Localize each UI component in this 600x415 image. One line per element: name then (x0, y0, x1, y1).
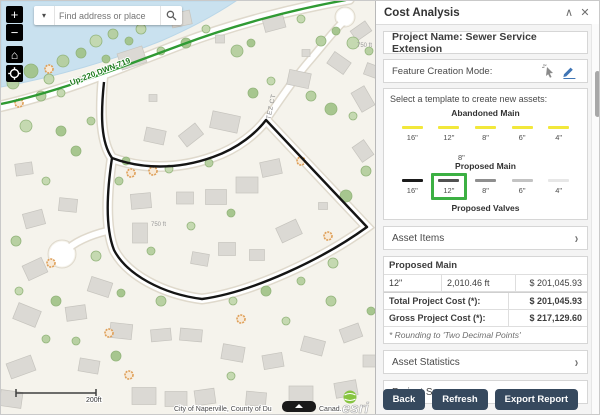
draw-pencil-icon[interactable] (559, 62, 579, 80)
tree-icon (91, 251, 101, 261)
panel-scrollbar-track[interactable] (591, 24, 600, 415)
building-footprint (216, 35, 225, 43)
tree-icon (227, 209, 235, 217)
tree-icon (247, 39, 255, 47)
building-footprint (165, 392, 187, 407)
tree-icon (20, 120, 32, 132)
template-item[interactable]: 8" (467, 120, 504, 147)
gross-cost-value: $ 217,129.60 (509, 310, 587, 326)
tree-icon (57, 89, 65, 97)
template-item[interactable]: 6" (504, 120, 541, 147)
tree-icon (149, 167, 157, 175)
proposed-main-row: 16" 12" 8" 6" 4" (390, 173, 581, 200)
tree-icon (102, 55, 110, 63)
total-cost-value: $ 201,045.93 (509, 293, 587, 309)
template-item[interactable]: 16" (394, 120, 431, 147)
cost-table: Proposed Main 12" 2,010.46 ft $ 201,045.… (383, 256, 588, 344)
building-footprint (236, 177, 258, 193)
tree-icon (326, 296, 336, 306)
tree-icon (125, 37, 133, 45)
template-item[interactable]: 6" (504, 173, 541, 200)
tree-icon (297, 277, 305, 285)
panel-header: Cost Analysis ∧ ✕ (376, 1, 600, 25)
tree-icon (108, 29, 118, 39)
tree-icon (237, 315, 245, 323)
tree-icon (316, 36, 326, 46)
template-item[interactable]: 8" (467, 173, 504, 200)
panel-title: Cost Analysis (384, 7, 561, 19)
tree-icon (361, 166, 371, 176)
feature-creation-mode-label: Feature Creation Mode: (392, 66, 539, 77)
building-footprint (289, 386, 313, 402)
tree-icon (51, 296, 61, 306)
building-footprint (180, 328, 203, 342)
building-footprint (302, 50, 310, 57)
template-item-selected[interactable]: 12" (431, 173, 468, 200)
building-footprint (194, 388, 216, 406)
home-button[interactable]: ⌂ (6, 46, 23, 63)
tree-icon (90, 35, 102, 47)
cost-length-cell: 2,010.46 ft (442, 275, 516, 291)
building-footprint (206, 190, 227, 205)
abandoned-main-extra: 8" (390, 147, 581, 158)
building-footprint (250, 250, 265, 261)
building-footprint (133, 223, 148, 243)
tree-icon (227, 372, 235, 380)
tree-icon (117, 289, 125, 297)
tree-icon (325, 103, 337, 115)
tree-icon (72, 337, 80, 345)
rounding-footnote: * Rounding to 'Two Decimal Points' (384, 327, 526, 343)
tree-icon (282, 317, 290, 325)
template-group-proposed-main: Proposed Main (390, 161, 581, 171)
tree-icon (45, 65, 53, 73)
map-basemap: Up-220 DWN-719 TEZ CT 750 ft 750 ft 200f… (1, 1, 375, 415)
svg-text:esri: esri (342, 400, 370, 415)
cost-analysis-panel: Cost Analysis ∧ ✕ Project Name: Sewer Se… (375, 1, 600, 415)
chevron-right-icon: › (575, 230, 579, 247)
tree-icon (76, 48, 86, 58)
scale-label: 200ft (86, 397, 102, 404)
tree-icon (367, 307, 375, 315)
locate-button[interactable] (6, 65, 23, 82)
cost-amount-cell: $ 201,045.93 (516, 275, 587, 291)
tree-icon (11, 236, 21, 246)
close-icon[interactable]: ✕ (577, 6, 593, 19)
parcel-dimension-label: 750 ft (151, 222, 166, 228)
cul-de-sac (337, 9, 354, 26)
tree-icon (47, 259, 55, 267)
cost-size-cell: 12" (384, 275, 442, 291)
zoom-in-button[interactable]: + (6, 6, 23, 23)
parcel-dimension-label: 750 ft (357, 43, 372, 49)
building-footprint (149, 95, 157, 102)
building-footprint (58, 198, 77, 213)
section-asset-statistics[interactable]: Asset Statistics › (383, 350, 588, 374)
back-button[interactable]: Back (383, 389, 426, 410)
tree-icon (125, 371, 133, 379)
tree-icon (324, 232, 332, 240)
panel-scrollbar-thumb[interactable] (595, 71, 600, 117)
tree-icon (136, 24, 146, 34)
total-cost-label: Total Project Cost (*): (384, 293, 509, 309)
tree-icon (306, 91, 316, 101)
tree-icon (349, 112, 357, 120)
tree-icon (44, 74, 54, 84)
building-footprint (191, 252, 210, 267)
tree-icon (71, 146, 81, 156)
refresh-button[interactable]: Refresh (432, 389, 487, 410)
building-footprint (130, 193, 151, 210)
building-footprint (319, 203, 328, 210)
building-footprint (262, 352, 284, 369)
building-footprint (15, 162, 34, 176)
feature-creation-mode-row: Feature Creation Mode: (383, 59, 588, 83)
search-box: ▾ (34, 6, 182, 25)
template-group-proposed-valves: Proposed Valves (390, 203, 581, 213)
tree-icon (42, 335, 50, 343)
building-footprint (245, 391, 266, 407)
tree-icon (87, 117, 95, 125)
search-input[interactable] (55, 11, 160, 21)
building-footprint (177, 192, 194, 204)
building-footprint (65, 305, 87, 322)
tree-icon (297, 15, 305, 23)
building-footprint (219, 243, 236, 256)
zoom-out-button[interactable]: − (6, 24, 23, 41)
tree-icon (115, 177, 123, 185)
cost-group-header: Proposed Main (384, 257, 587, 274)
chevron-right-icon: › (575, 354, 579, 371)
template-group-abandoned-main: Abandoned Main (390, 108, 581, 118)
building-footprint (151, 328, 172, 342)
tree-icon (261, 286, 271, 296)
tree-icon (105, 329, 113, 337)
export-report-button[interactable]: Export Report (495, 389, 578, 410)
tree-icon (15, 287, 23, 295)
building-footprint (132, 388, 156, 405)
tree-icon (229, 297, 237, 305)
tree-icon (187, 222, 195, 230)
tree-icon (57, 55, 69, 67)
template-item[interactable]: 12" (431, 120, 468, 147)
tree-icon (231, 45, 243, 57)
tree-icon (328, 258, 338, 268)
abandoned-main-row: 16" 12" 8" 6" 4" (390, 120, 581, 147)
action-buttons: Back Refresh Export Report (383, 389, 578, 410)
attribution-text: City of Naperville, County of Du (174, 406, 272, 413)
tree-icon (42, 177, 50, 185)
select-wand-icon[interactable] (539, 62, 559, 80)
template-item[interactable]: 16" (394, 173, 431, 200)
map-canvas[interactable]: Up-220 DWN-719 TEZ CT 750 ft 750 ft 200f… (1, 1, 375, 415)
tree-icon (24, 64, 38, 78)
tree-icon (267, 77, 275, 85)
tree-icon (248, 88, 258, 98)
building-footprint (363, 355, 375, 367)
tree-icon (127, 169, 135, 177)
tree-icon (111, 351, 121, 361)
template-item[interactable]: 4" (540, 173, 577, 200)
locate-icon (8, 67, 21, 80)
search-icon[interactable] (160, 6, 182, 25)
collapse-up-icon[interactable]: ∧ (561, 6, 577, 19)
tree-icon (156, 296, 166, 306)
section-asset-items[interactable]: Asset Items › (383, 226, 588, 250)
tree-icon (202, 25, 210, 33)
tree-icon (56, 126, 66, 136)
panel-body: Project Name: Sewer Service Extension Fe… (376, 24, 592, 415)
template-picker: Select a template to create new assets: … (383, 88, 588, 220)
template-item[interactable]: 4" (540, 120, 577, 147)
search-source-dropdown[interactable]: ▾ (34, 6, 55, 25)
project-name: Project Name: Sewer Service Extension (383, 31, 588, 54)
tree-icon (332, 27, 340, 35)
cost-analysis-app: Up-220 DWN-719 TEZ CT 750 ft 750 ft 200f… (0, 0, 600, 415)
tree-icon (147, 247, 155, 255)
gross-cost-label: Gross Project Cost (*): (384, 310, 509, 326)
template-prompt: Select a template to create new assets: (390, 94, 581, 104)
